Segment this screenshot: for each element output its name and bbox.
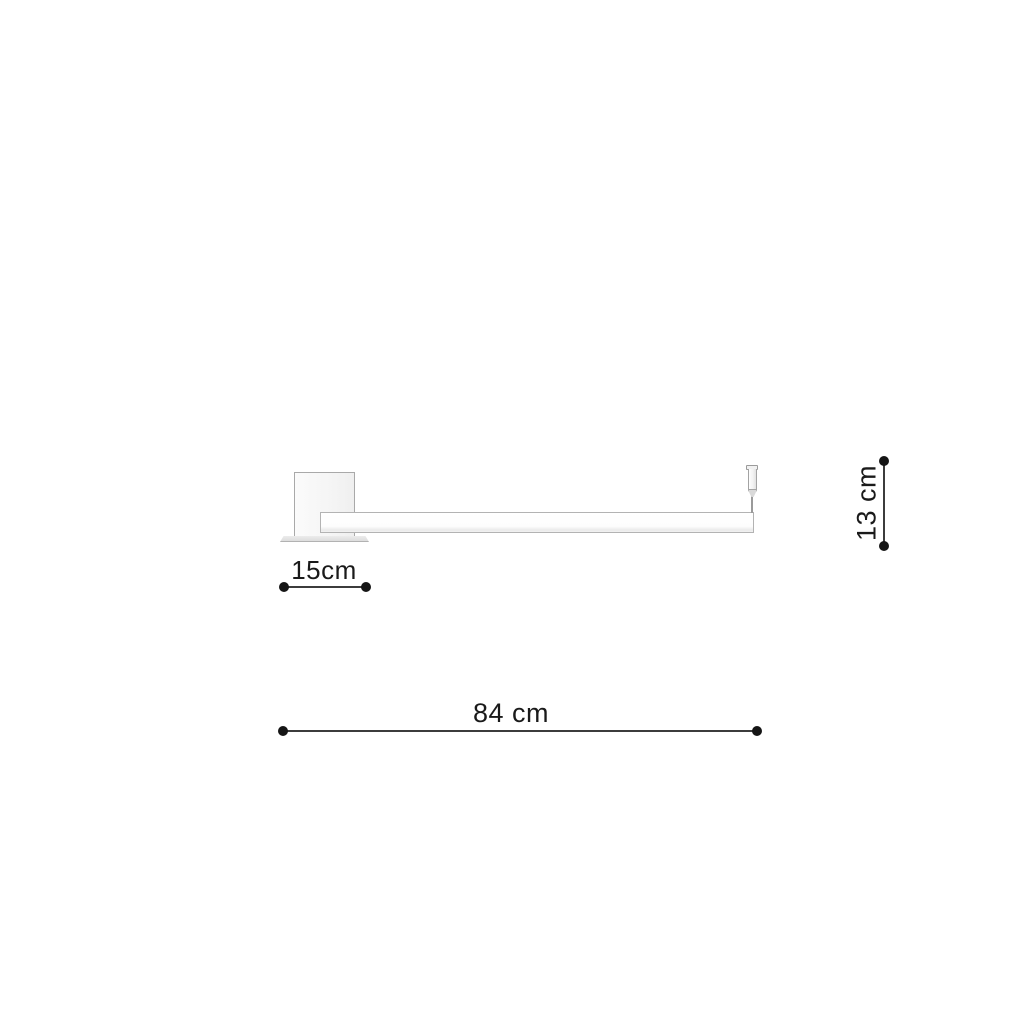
cable-gripper-cone [748, 490, 757, 497]
dimension-line [286, 586, 364, 588]
suspension-wire [751, 495, 753, 513]
dimension-label-fixture-height: 13 cm [854, 465, 881, 541]
mounting-plate [280, 536, 369, 542]
dimension-line [286, 730, 754, 732]
dimension-endpoint-dot [278, 726, 288, 736]
dimension-endpoint-dot [752, 726, 762, 736]
dimension-label-canopy-width: 15cm [291, 557, 357, 583]
cable-gripper-body [748, 469, 757, 490]
light-bar [320, 512, 754, 533]
dimension-label-total-length: 84 cm [473, 700, 549, 727]
dimension-line [883, 464, 885, 543]
dimension-endpoint-dot [279, 582, 289, 592]
dimension-endpoint-dot [361, 582, 371, 592]
product-dimension-diagram: 15cm 84 cm 13 cm [0, 0, 1024, 1024]
dimension-endpoint-dot [879, 541, 889, 551]
